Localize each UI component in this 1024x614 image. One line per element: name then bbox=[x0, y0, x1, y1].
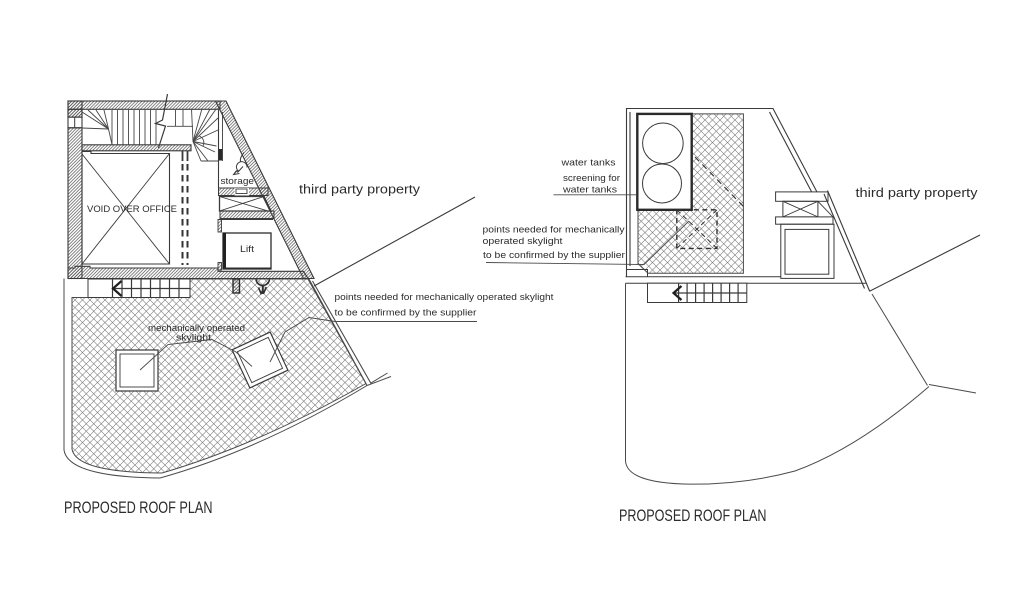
svg-text:PROPOSED ROOF PLAN: PROPOSED ROOF PLAN bbox=[619, 506, 767, 525]
svg-text:points needed for mechanically: points needed for mechanically bbox=[483, 225, 625, 235]
svg-text:to be confirmed by the supplie: to be confirmed by the supplier bbox=[335, 308, 477, 318]
svg-text:to be confirmed by the supplie: to be confirmed by the supplier bbox=[483, 250, 625, 260]
svg-text:skylight: skylight bbox=[176, 333, 212, 343]
svg-text:third party property: third party property bbox=[299, 182, 421, 197]
svg-text:Lift: Lift bbox=[240, 244, 254, 255]
svg-text:storage: storage bbox=[221, 176, 255, 187]
svg-text:water tanks: water tanks bbox=[562, 185, 618, 195]
svg-text:VOID OVER OFFICE: VOID OVER OFFICE bbox=[87, 204, 177, 214]
svg-text:points needed for mechanically: points needed for mechanically operated … bbox=[335, 292, 554, 302]
svg-text:operated skylight: operated skylight bbox=[483, 236, 563, 246]
svg-text:third party property: third party property bbox=[856, 185, 979, 200]
svg-text:water tanks: water tanks bbox=[560, 158, 616, 168]
svg-text:screening for: screening for bbox=[563, 173, 620, 183]
svg-text:mechanically operated: mechanically operated bbox=[148, 323, 245, 333]
svg-text:PROPOSED ROOF PLAN: PROPOSED ROOF PLAN bbox=[64, 498, 213, 517]
